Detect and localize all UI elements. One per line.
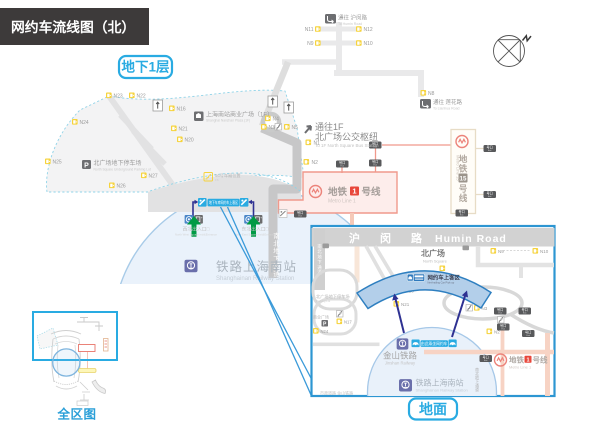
svg-text:北广场公交枢纽: 北广场公交枢纽 [315,131,378,142]
svg-text:Metro Line 1: Metro Line 1 [328,199,356,205]
svg-text:N10: N10 [364,41,373,47]
svg-text:N25: N25 [53,159,62,165]
svg-text:N3: N3 [269,125,276,131]
svg-text:1: 1 [526,357,529,363]
svg-text:N26: N26 [117,183,126,189]
svg-text:N17: N17 [344,319,352,324]
svg-text:N22: N22 [137,93,146,99]
svg-text:Shanghai Nanzhan Plaza (1F): Shanghai Nanzhan Plaza (1F) [206,119,250,123]
svg-text:地铁: 地铁 [509,355,524,365]
svg-text:N10: N10 [540,249,549,254]
svg-text:东北出入口□: 东北出入口□ [242,226,269,233]
svg-text:N23: N23 [114,93,123,99]
svg-text:号线: 号线 [459,184,468,203]
svg-text:地下1层: 地下1层 [121,59,169,75]
svg-text:To 1F North Square Bus Station: To 1F North Square Bus Station [315,143,379,148]
svg-text:To Humin Road: To Humin Road [338,22,362,26]
svg-text:北广场地下停车场: 北广场地下停车场 [94,159,142,167]
svg-text:North West Square exit&Entranc: North West Square exit&Entrance [175,233,217,237]
svg-text:号线: 号线 [362,186,382,198]
svg-text:N11: N11 [305,27,314,33]
svg-text:N2: N2 [312,160,319,166]
svg-text:N1: N1 [314,141,321,147]
svg-text:N8: N8 [428,91,435,97]
svg-text:N24: N24 [321,329,329,334]
svg-text:铁路上海南站: 铁路上海南站 [416,378,464,388]
svg-text:Metro Line 1: Metro Line 1 [509,365,532,370]
svg-text:地铁: 地铁 [328,186,348,198]
svg-text:N21: N21 [401,302,410,307]
svg-text:1: 1 [352,187,356,196]
svg-text:地下车库网约车上客区: 地下车库网约车上客区 [209,199,238,205]
svg-text:N20: N20 [185,137,194,143]
svg-text:沪闵路: 沪闵路 [349,231,442,245]
svg-text:Shanghainan Railway Station: Shanghainan Railway Station [216,276,294,282]
svg-text:N12: N12 [364,27,373,33]
svg-text:N27: N27 [149,173,158,179]
svg-text:号线: 号线 [533,355,548,365]
svg-text:N24: N24 [80,120,89,126]
svg-text:P: P [84,162,89,169]
svg-text:商业广场: 商业广场 [313,314,329,320]
svg-text:Humin Road: Humin Road [435,233,507,245]
svg-text:56号车厢位置: 56号车厢位置 [215,172,241,179]
svg-text:+: + [260,216,262,220]
svg-text:Metro Line 15: Metro Line 15 [456,155,461,181]
svg-text:N5: N5 [292,125,299,131]
svg-text:N4: N4 [273,116,280,122]
svg-text:To Lianhua Road: To Lianhua Road [433,107,460,111]
svg-text:网约车流线图（北）: 网约车流线图（北） [11,19,135,35]
svg-text:North Square: North Square [423,259,448,264]
svg-text:通往 莲花路: 通往 莲花路 [433,98,463,106]
svg-text:上海南站商业广场（1F）: 上海南站商业广场（1F） [206,111,273,119]
svg-text:N21: N21 [179,126,188,132]
svg-text:通往1F: 通往1F [315,121,344,132]
svg-text:North Square Underground Parki: North Square Underground Parking Lot [94,168,151,172]
svg-text:市政道路 金山铁路: 市政道路 金山铁路 [320,390,353,396]
svg-text:Shanghainan Railway Station: Shanghainan Railway Station [416,388,468,393]
svg-text:由此乘坐网约车: 由此乘坐网约车 [421,341,448,346]
svg-text:N16: N16 [177,106,186,112]
svg-text:N9: N9 [307,41,314,47]
svg-text:通往 沪闵路: 通往 沪闵路 [338,14,368,22]
svg-text:N9: N9 [498,249,504,254]
svg-text:Parking Lot: Parking Lot [316,299,330,303]
svg-text:全区图: 全区图 [56,407,96,422]
svg-text:Net-hailing Car Pick-up: Net-hailing Car Pick-up [428,281,455,285]
svg-text:地面: 地面 [419,401,447,417]
svg-text:西北出入口□: 西北出入口□ [183,226,210,233]
svg-text:南北地下通道: 南北地下通道 [475,367,479,392]
svg-text:网约车上客区: 网约车上客区 [428,273,461,281]
svg-text:金山铁路: 金山铁路 [383,351,418,361]
svg-text:F6: F6 [215,178,219,182]
svg-text:北广场: 北广场 [421,248,445,258]
svg-text:Jinshan Railway: Jinshan Railway [385,361,416,366]
svg-text:+: + [201,216,203,220]
